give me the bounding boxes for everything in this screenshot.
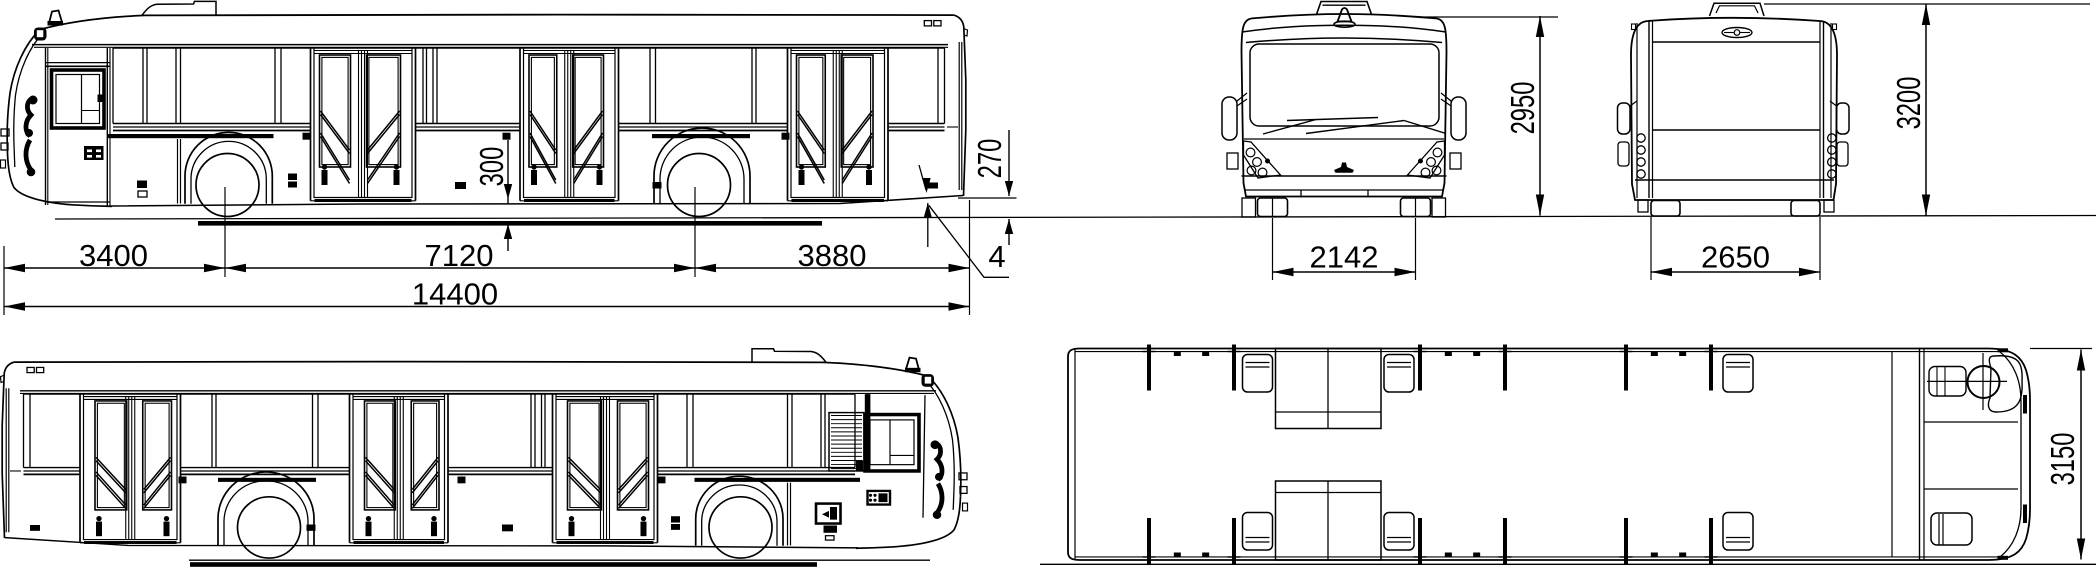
svg-text:300: 300 bbox=[474, 147, 511, 187]
svg-text:2142: 2142 bbox=[1310, 240, 1379, 275]
svg-text:270: 270 bbox=[972, 139, 1009, 179]
svg-text:3200: 3200 bbox=[1891, 77, 1928, 130]
svg-text:2650: 2650 bbox=[1701, 240, 1770, 275]
svg-text:14400: 14400 bbox=[412, 277, 498, 312]
svg-text:4: 4 bbox=[988, 239, 1005, 274]
svg-text:3400: 3400 bbox=[79, 238, 148, 273]
svg-text:3150: 3150 bbox=[2045, 433, 2082, 486]
svg-text:7120: 7120 bbox=[425, 238, 494, 273]
svg-text:3880: 3880 bbox=[798, 238, 867, 273]
svg-text:2950: 2950 bbox=[1505, 82, 1542, 135]
